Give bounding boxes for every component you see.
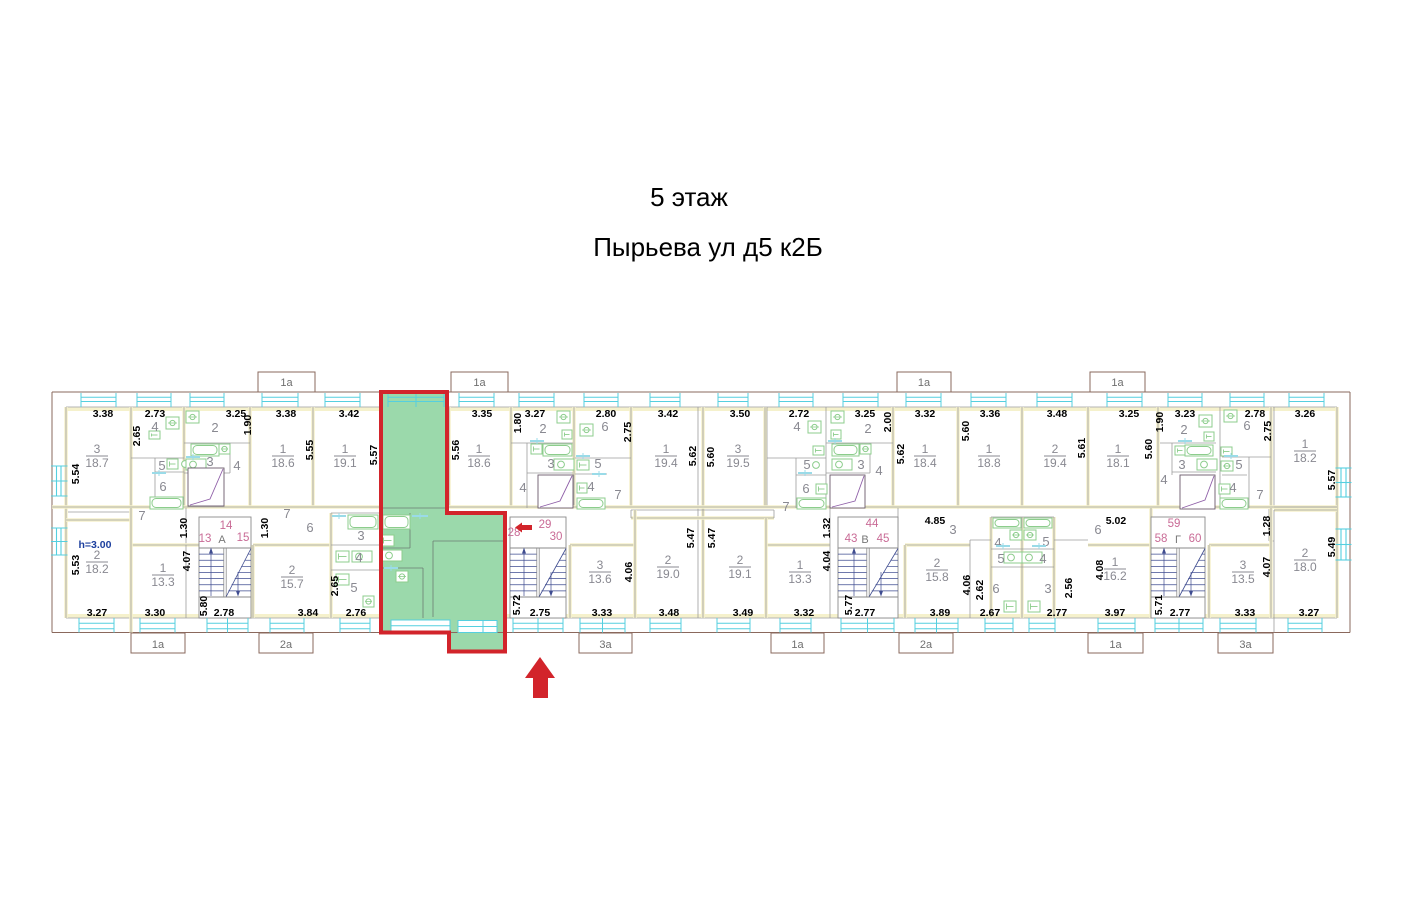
svg-text:7: 7 bbox=[138, 508, 145, 523]
svg-text:1.90: 1.90 bbox=[1154, 412, 1166, 433]
svg-text:Г: Г bbox=[1175, 534, 1181, 546]
svg-text:1: 1 bbox=[1112, 555, 1119, 569]
svg-text:18.6: 18.6 bbox=[467, 456, 491, 470]
svg-text:4: 4 bbox=[587, 479, 594, 494]
svg-text:5.62: 5.62 bbox=[895, 444, 907, 465]
svg-text:3.27: 3.27 bbox=[525, 408, 546, 420]
svg-text:43: 43 bbox=[845, 533, 858, 545]
svg-text:1: 1 bbox=[1302, 437, 1309, 451]
svg-text:1: 1 bbox=[280, 442, 287, 456]
svg-text:3: 3 bbox=[357, 528, 364, 543]
svg-text:3.84: 3.84 bbox=[298, 607, 319, 619]
svg-text:19.1: 19.1 bbox=[728, 567, 752, 581]
svg-text:3: 3 bbox=[735, 442, 742, 456]
svg-text:3: 3 bbox=[949, 522, 956, 537]
svg-text:3: 3 bbox=[597, 558, 604, 572]
svg-text:1а: 1а bbox=[791, 639, 804, 651]
svg-text:3.26: 3.26 bbox=[1295, 408, 1316, 420]
svg-text:2: 2 bbox=[934, 556, 941, 570]
svg-text:5.60: 5.60 bbox=[1143, 439, 1155, 460]
svg-text:2.75: 2.75 bbox=[622, 422, 634, 443]
svg-text:3: 3 bbox=[94, 442, 101, 456]
svg-text:1: 1 bbox=[476, 442, 483, 456]
svg-text:2.65: 2.65 bbox=[329, 576, 341, 597]
svg-text:3.25: 3.25 bbox=[1119, 408, 1140, 420]
svg-text:Пырьева ул д5 к2Б: Пырьева ул д5 к2Б bbox=[593, 232, 823, 262]
svg-text:5: 5 bbox=[1235, 457, 1242, 472]
svg-text:2.77: 2.77 bbox=[1047, 607, 1068, 619]
svg-text:3: 3 bbox=[1044, 581, 1051, 596]
svg-text:6: 6 bbox=[802, 481, 809, 496]
svg-text:4: 4 bbox=[1229, 480, 1236, 495]
svg-text:18.0: 18.0 bbox=[1293, 560, 1317, 574]
svg-text:3.23: 3.23 bbox=[1175, 408, 1196, 420]
svg-text:4: 4 bbox=[151, 419, 158, 434]
svg-text:А: А bbox=[218, 534, 226, 546]
svg-text:5.61: 5.61 bbox=[1076, 438, 1088, 459]
svg-text:3: 3 bbox=[857, 457, 864, 472]
svg-text:4: 4 bbox=[1039, 551, 1046, 566]
svg-text:2.00: 2.00 bbox=[882, 412, 894, 433]
svg-text:2: 2 bbox=[1052, 442, 1059, 456]
svg-text:5.57: 5.57 bbox=[368, 445, 380, 466]
svg-text:5: 5 bbox=[350, 580, 357, 595]
svg-text:4: 4 bbox=[519, 480, 526, 495]
svg-text:1.80: 1.80 bbox=[512, 413, 524, 434]
svg-text:5.60: 5.60 bbox=[960, 421, 972, 442]
svg-text:13.3: 13.3 bbox=[151, 575, 175, 589]
svg-text:5.47: 5.47 bbox=[706, 528, 718, 549]
svg-text:4.07: 4.07 bbox=[1261, 557, 1273, 578]
svg-text:18.1: 18.1 bbox=[1106, 456, 1130, 470]
svg-text:3.42: 3.42 bbox=[339, 408, 360, 420]
svg-text:В: В bbox=[861, 534, 868, 546]
svg-text:13.6: 13.6 bbox=[588, 572, 612, 586]
svg-text:3.36: 3.36 bbox=[980, 408, 1001, 420]
svg-text:7: 7 bbox=[1256, 487, 1263, 502]
svg-text:4: 4 bbox=[355, 550, 362, 565]
svg-text:5: 5 bbox=[997, 551, 1004, 566]
svg-text:19.4: 19.4 bbox=[1043, 456, 1067, 470]
svg-text:5.57: 5.57 bbox=[1326, 470, 1338, 491]
svg-text:2.56: 2.56 bbox=[1063, 578, 1075, 599]
svg-text:5: 5 bbox=[803, 457, 810, 472]
svg-text:19.5: 19.5 bbox=[726, 456, 750, 470]
svg-text:44: 44 bbox=[866, 518, 879, 530]
svg-text:1: 1 bbox=[922, 442, 929, 456]
svg-text:3.48: 3.48 bbox=[659, 607, 680, 619]
svg-text:2.75: 2.75 bbox=[1262, 421, 1274, 442]
svg-text:6: 6 bbox=[992, 581, 999, 596]
svg-text:4: 4 bbox=[793, 419, 800, 434]
svg-text:1а: 1а bbox=[1111, 377, 1124, 389]
svg-text:1: 1 bbox=[342, 442, 349, 456]
svg-text:13.5: 13.5 bbox=[1231, 572, 1255, 586]
svg-text:4.06: 4.06 bbox=[961, 575, 973, 596]
svg-text:18.4: 18.4 bbox=[913, 456, 937, 470]
svg-text:3: 3 bbox=[547, 456, 554, 471]
svg-text:1.32: 1.32 bbox=[821, 518, 833, 539]
svg-text:4.07: 4.07 bbox=[181, 551, 193, 572]
svg-text:3.32: 3.32 bbox=[794, 607, 815, 619]
svg-text:2.62: 2.62 bbox=[974, 580, 986, 601]
svg-text:45: 45 bbox=[877, 533, 890, 545]
svg-text:6: 6 bbox=[601, 419, 608, 434]
svg-text:5.56: 5.56 bbox=[450, 440, 462, 461]
svg-text:5.80: 5.80 bbox=[198, 596, 210, 617]
svg-text:3: 3 bbox=[1240, 558, 1247, 572]
svg-text:58: 58 bbox=[1155, 533, 1168, 545]
svg-text:18.8: 18.8 bbox=[977, 456, 1001, 470]
svg-text:2: 2 bbox=[864, 421, 871, 436]
svg-text:2.76: 2.76 bbox=[346, 607, 367, 619]
svg-text:29: 29 bbox=[539, 519, 552, 531]
svg-text:3.48: 3.48 bbox=[1047, 408, 1068, 420]
svg-text:7: 7 bbox=[283, 506, 290, 521]
svg-text:5.77: 5.77 bbox=[843, 595, 855, 616]
svg-text:1: 1 bbox=[663, 442, 670, 456]
svg-text:1: 1 bbox=[986, 442, 993, 456]
svg-text:6: 6 bbox=[1094, 522, 1101, 537]
svg-text:19.4: 19.4 bbox=[654, 456, 678, 470]
svg-text:1а: 1а bbox=[473, 377, 486, 389]
svg-text:4: 4 bbox=[875, 463, 882, 478]
svg-text:4: 4 bbox=[994, 535, 1001, 550]
svg-text:30: 30 bbox=[550, 531, 563, 543]
svg-text:5.02: 5.02 bbox=[1106, 515, 1127, 527]
svg-text:13: 13 bbox=[199, 533, 212, 545]
svg-text:1.90: 1.90 bbox=[242, 415, 254, 436]
svg-text:2: 2 bbox=[1180, 422, 1187, 437]
svg-text:3: 3 bbox=[206, 454, 213, 469]
svg-text:1: 1 bbox=[797, 558, 804, 572]
svg-text:1а: 1а bbox=[918, 377, 931, 389]
svg-text:1: 1 bbox=[1115, 442, 1122, 456]
svg-text:60: 60 bbox=[1189, 533, 1202, 545]
svg-text:3а: 3а bbox=[599, 639, 612, 651]
svg-text:3.30: 3.30 bbox=[145, 607, 166, 619]
svg-text:7: 7 bbox=[782, 499, 789, 514]
svg-text:3: 3 bbox=[1178, 457, 1185, 472]
svg-text:1.30: 1.30 bbox=[259, 518, 271, 539]
svg-text:3.25: 3.25 bbox=[855, 408, 876, 420]
svg-text:1: 1 bbox=[160, 561, 167, 575]
svg-text:18.2: 18.2 bbox=[1293, 451, 1317, 465]
svg-text:2.77: 2.77 bbox=[1170, 607, 1191, 619]
svg-text:3.38: 3.38 bbox=[276, 408, 297, 420]
svg-text:2.75: 2.75 bbox=[530, 607, 551, 619]
svg-text:3а: 3а bbox=[1239, 639, 1252, 651]
svg-text:5.72: 5.72 bbox=[511, 595, 523, 616]
svg-text:18.7: 18.7 bbox=[85, 456, 109, 470]
svg-text:15.7: 15.7 bbox=[280, 577, 304, 591]
svg-text:5.47: 5.47 bbox=[685, 528, 697, 549]
svg-text:3.35: 3.35 bbox=[472, 408, 493, 420]
svg-text:1а: 1а bbox=[1109, 639, 1122, 651]
svg-text:6: 6 bbox=[306, 520, 313, 535]
svg-text:5.53: 5.53 bbox=[70, 555, 82, 576]
svg-text:5.60: 5.60 bbox=[705, 447, 717, 468]
svg-text:3.49: 3.49 bbox=[733, 607, 754, 619]
svg-text:15: 15 bbox=[237, 532, 250, 544]
svg-text:2а: 2а bbox=[280, 639, 293, 651]
svg-text:3.27: 3.27 bbox=[1299, 607, 1320, 619]
svg-text:2.77: 2.77 bbox=[855, 607, 876, 619]
svg-text:1.30: 1.30 bbox=[178, 518, 190, 539]
svg-text:3.38: 3.38 bbox=[93, 408, 114, 420]
svg-text:2: 2 bbox=[289, 563, 296, 577]
svg-text:2: 2 bbox=[737, 553, 744, 567]
svg-text:2: 2 bbox=[211, 420, 218, 435]
svg-text:6: 6 bbox=[1243, 418, 1250, 433]
svg-text:14: 14 bbox=[220, 520, 233, 532]
svg-text:5.71: 5.71 bbox=[1153, 595, 1165, 616]
svg-text:2.78: 2.78 bbox=[214, 607, 235, 619]
svg-text:4.04: 4.04 bbox=[821, 551, 833, 572]
svg-text:5.55: 5.55 bbox=[304, 440, 316, 461]
svg-text:1а: 1а bbox=[280, 377, 293, 389]
svg-text:5 этаж: 5 этаж bbox=[650, 182, 728, 212]
svg-text:1а: 1а bbox=[152, 639, 165, 651]
svg-text:4.06: 4.06 bbox=[623, 562, 635, 583]
svg-text:5.62: 5.62 bbox=[687, 446, 699, 467]
svg-text:13.3: 13.3 bbox=[788, 572, 812, 586]
svg-text:3.97: 3.97 bbox=[1105, 607, 1126, 619]
svg-text:3.33: 3.33 bbox=[1235, 607, 1256, 619]
svg-text:59: 59 bbox=[1168, 518, 1181, 530]
svg-text:4: 4 bbox=[233, 458, 240, 473]
svg-text:3.50: 3.50 bbox=[730, 408, 751, 420]
svg-text:5.49: 5.49 bbox=[1326, 537, 1338, 558]
svg-text:16.2: 16.2 bbox=[1103, 569, 1127, 583]
svg-text:3.27: 3.27 bbox=[87, 607, 108, 619]
svg-text:18.6: 18.6 bbox=[271, 456, 295, 470]
svg-text:2: 2 bbox=[665, 553, 672, 567]
svg-text:2: 2 bbox=[1302, 546, 1309, 560]
svg-text:2.65: 2.65 bbox=[131, 426, 143, 447]
svg-text:4: 4 bbox=[1160, 472, 1167, 487]
svg-text:18.2: 18.2 bbox=[85, 562, 109, 576]
svg-text:2.67: 2.67 bbox=[980, 607, 1001, 619]
svg-text:7: 7 bbox=[614, 487, 621, 502]
svg-text:4.85: 4.85 bbox=[925, 515, 946, 527]
svg-text:3.32: 3.32 bbox=[915, 408, 936, 420]
svg-text:3.42: 3.42 bbox=[658, 408, 679, 420]
svg-text:6: 6 bbox=[159, 479, 166, 494]
svg-text:5: 5 bbox=[594, 456, 601, 471]
svg-text:2а: 2а bbox=[920, 639, 933, 651]
svg-text:19.0: 19.0 bbox=[656, 567, 680, 581]
svg-text:1.28: 1.28 bbox=[1261, 516, 1273, 537]
svg-text:19.1: 19.1 bbox=[333, 456, 357, 470]
svg-text:15.8: 15.8 bbox=[925, 570, 949, 584]
svg-text:5.54: 5.54 bbox=[70, 464, 82, 485]
svg-text:2: 2 bbox=[539, 421, 546, 436]
svg-text:3.33: 3.33 bbox=[592, 607, 613, 619]
svg-text:h=3.00: h=3.00 bbox=[79, 539, 112, 551]
svg-text:3.89: 3.89 bbox=[930, 607, 951, 619]
